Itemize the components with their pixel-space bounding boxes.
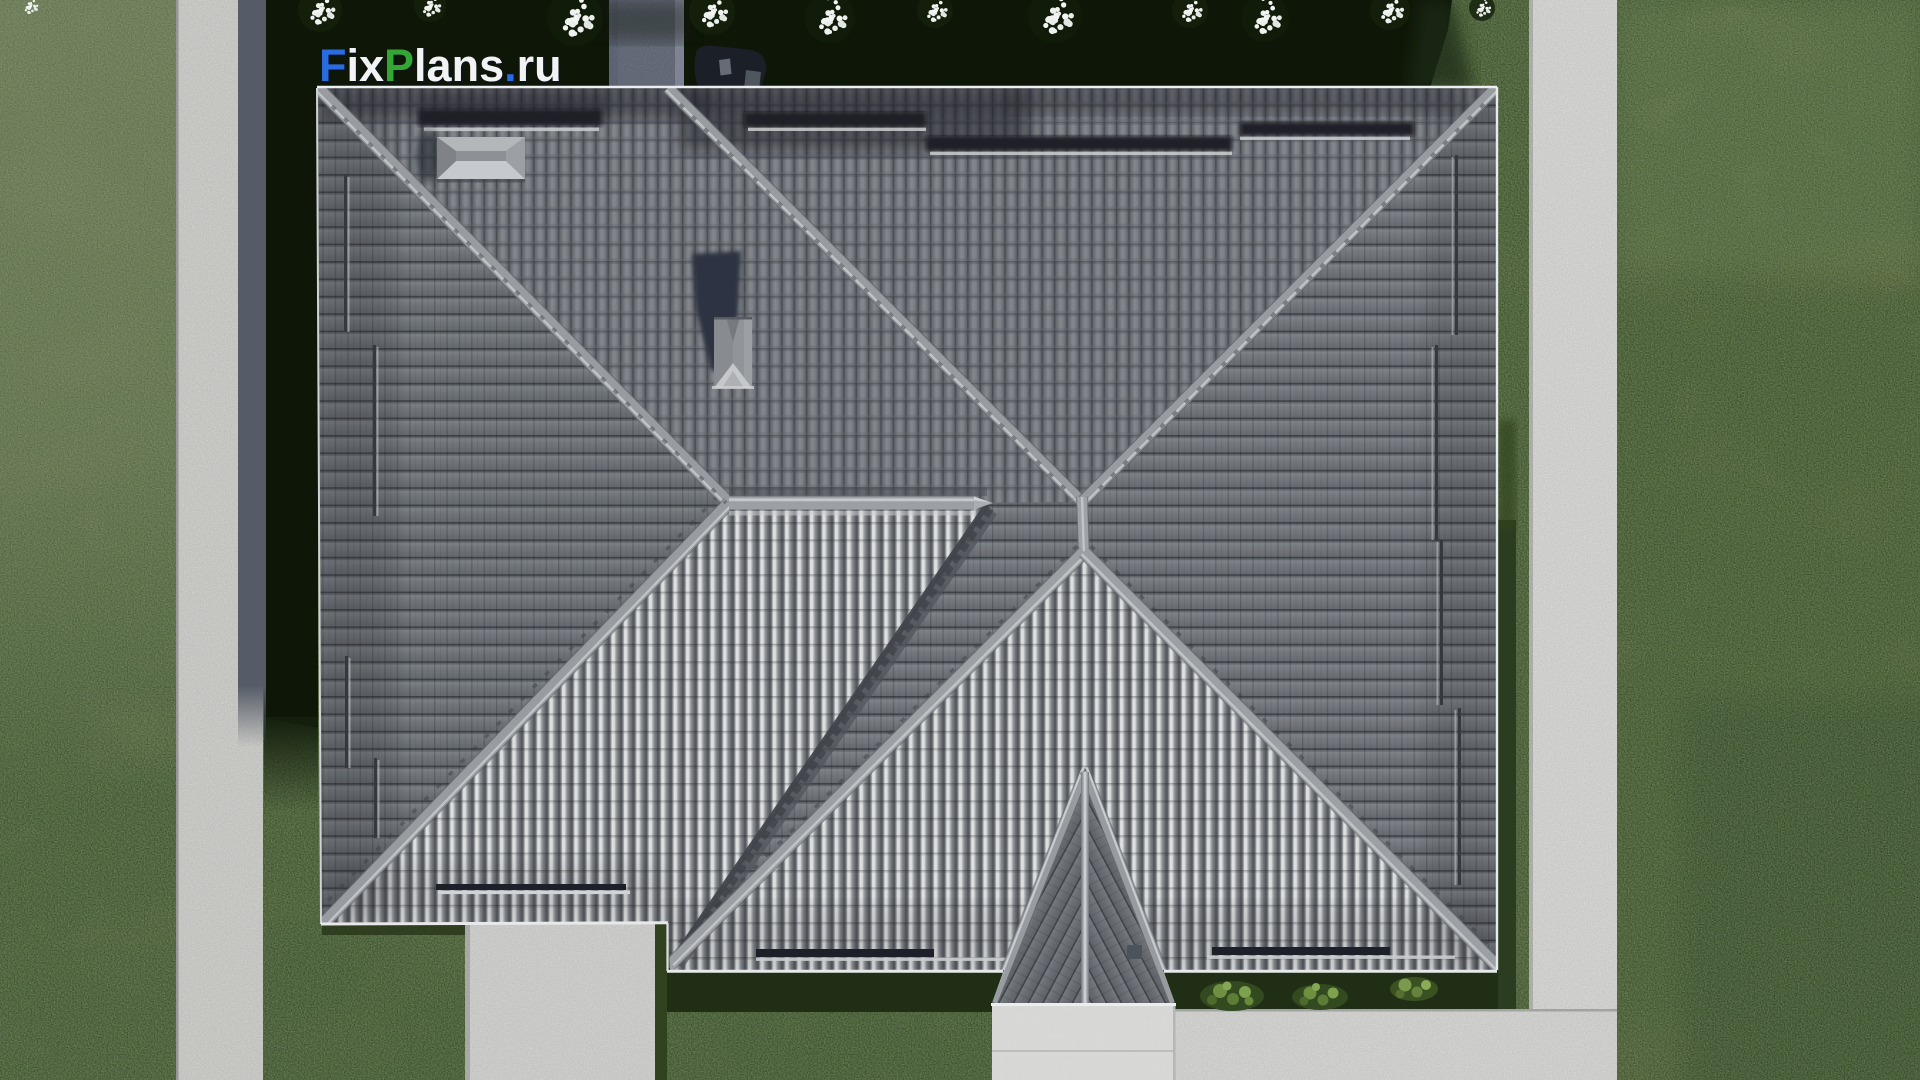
- svg-text:FixPlans.ru: FixPlans.ru: [319, 40, 562, 91]
